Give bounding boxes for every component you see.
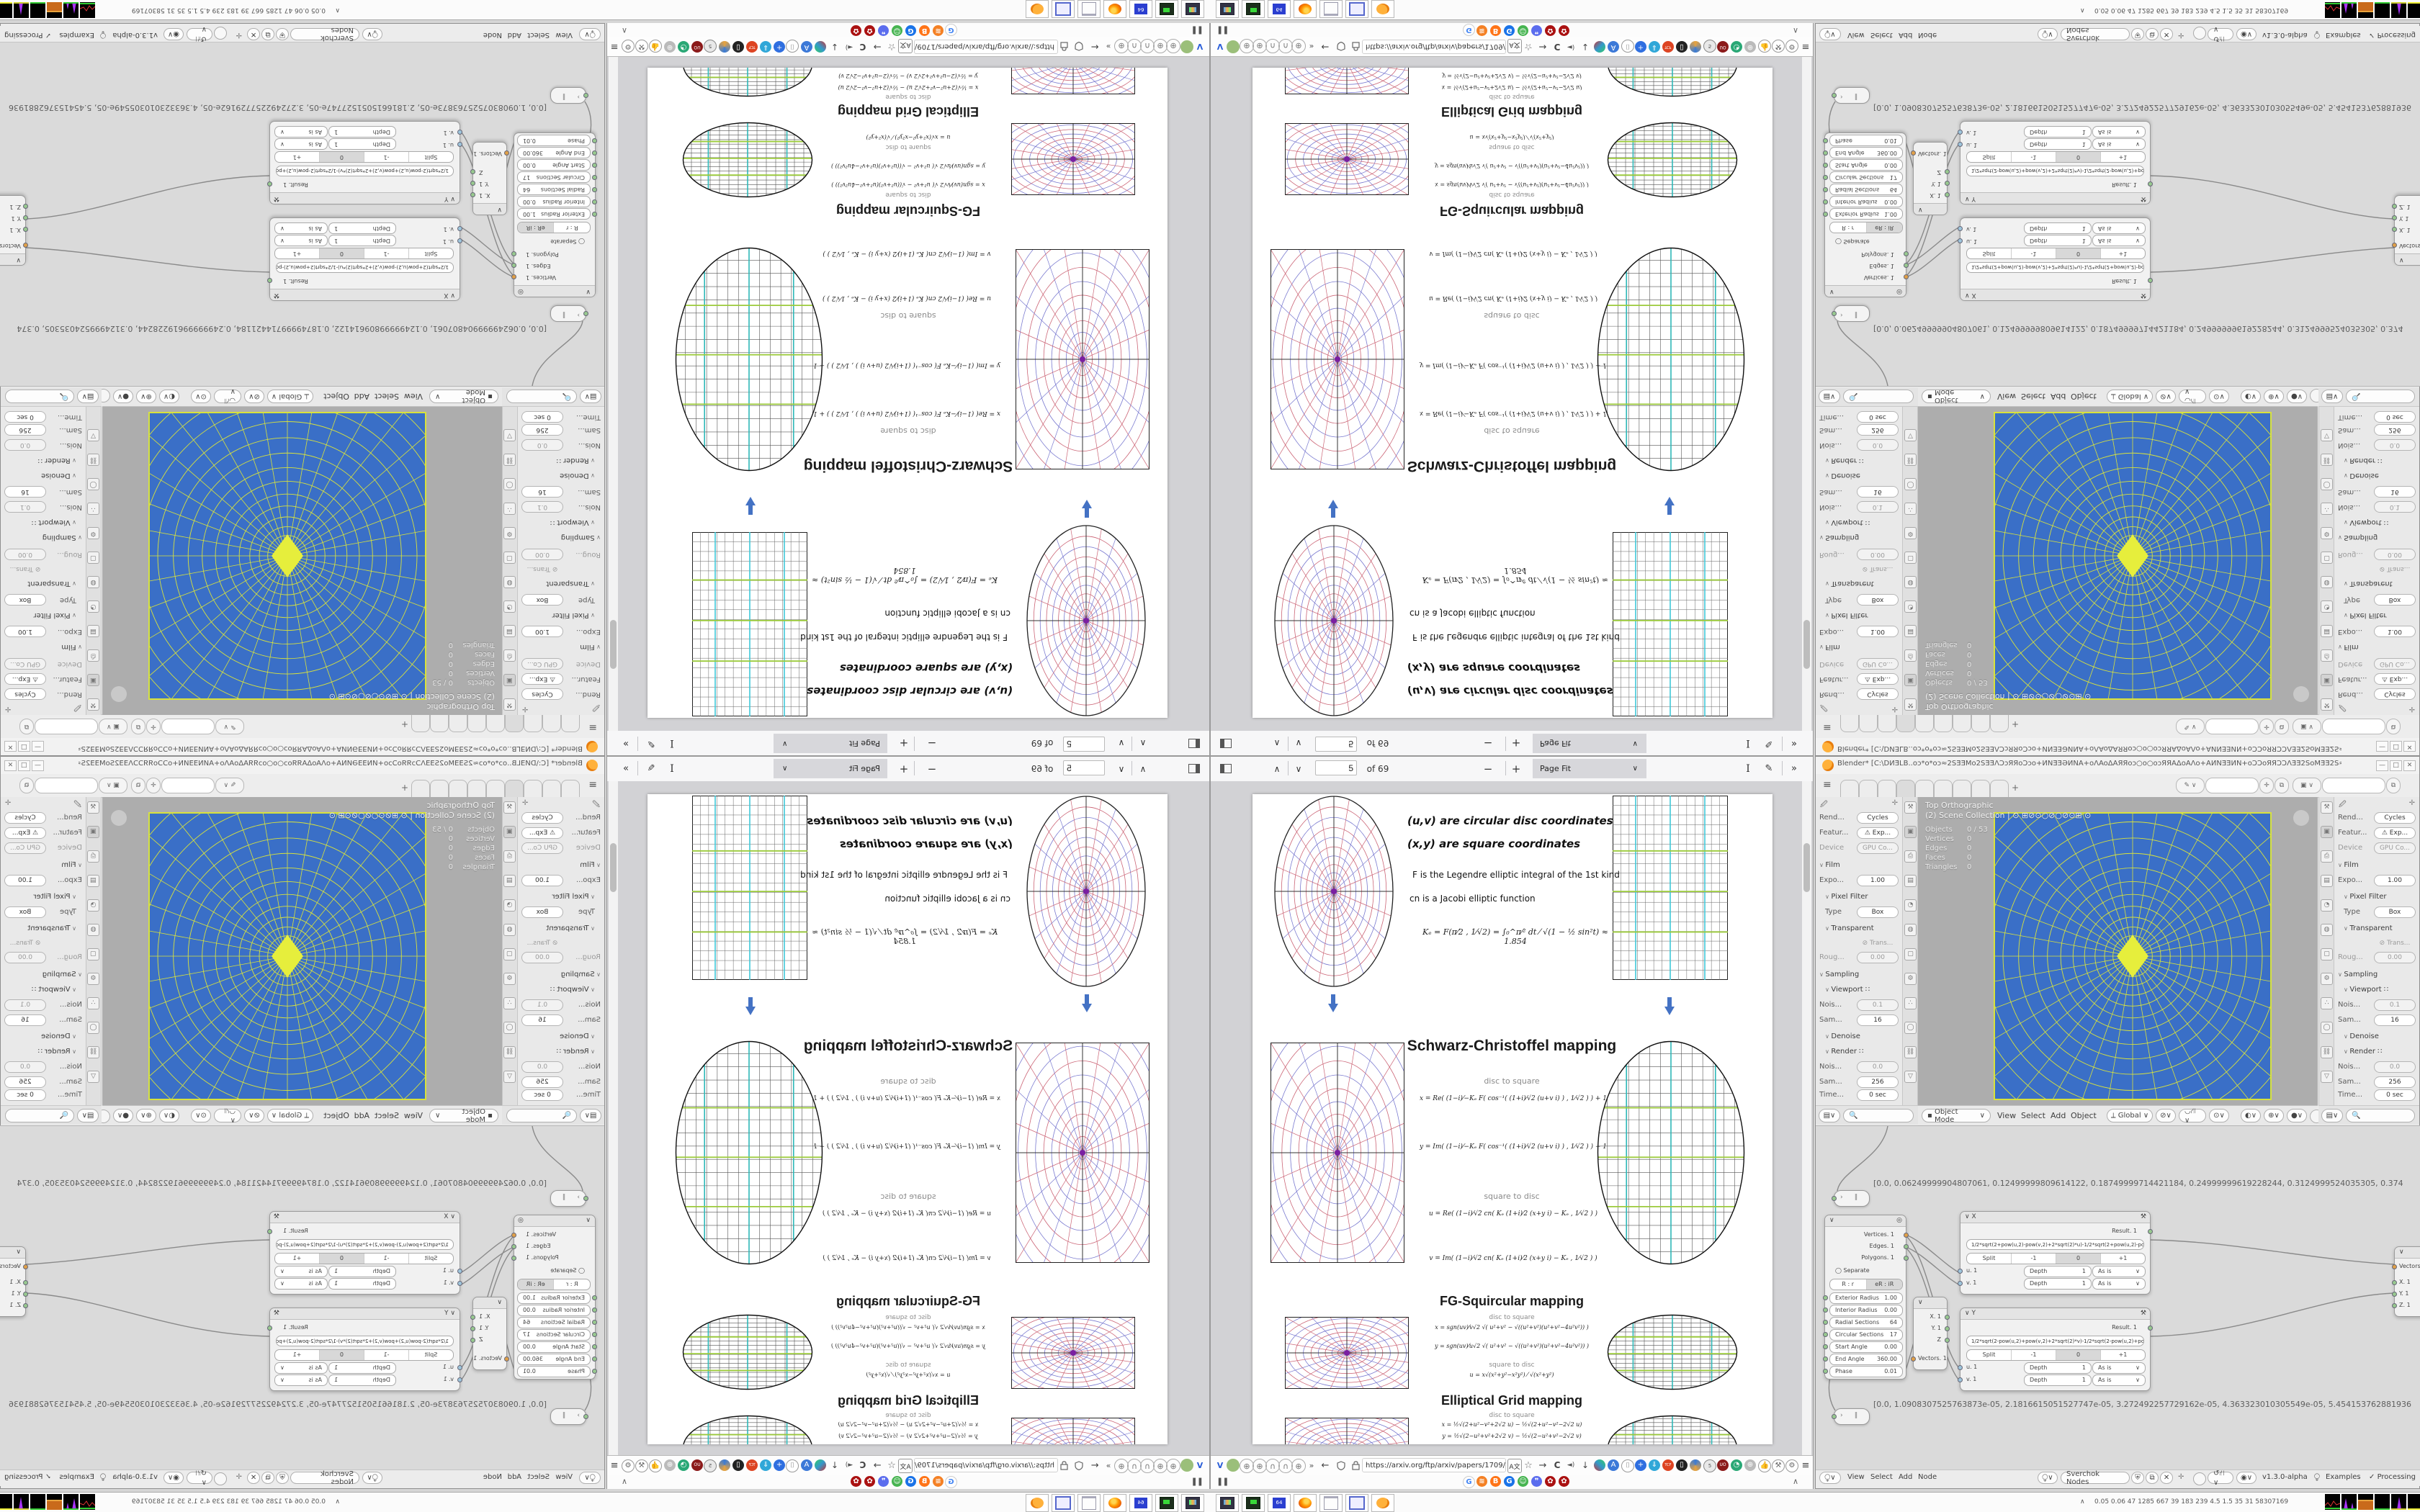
tool-tab-icon[interactable]: ⚒: [87, 698, 99, 711]
data-tab-icon[interactable]: ▽: [2321, 429, 2333, 441]
sidebar-toggle-icon[interactable]: [1186, 734, 1202, 752]
page-number-input[interactable]: [1315, 737, 1357, 752]
tool-tab-icon[interactable]: ⚒: [503, 801, 516, 814]
split-segment[interactable]: Split-10+1: [274, 1349, 454, 1361]
unlink-icon[interactable]: ✕: [247, 28, 260, 40]
render-time-field[interactable]: 0 sec: [521, 411, 563, 423]
gpu-graph-tray-icon[interactable]: [63, 1494, 79, 1510]
headset-icon[interactable]: ∩: [1265, 1459, 1280, 1473]
node-slider[interactable]: Start Angle0.00: [517, 1341, 591, 1353]
zoom-in-button[interactable]: +: [897, 760, 911, 778]
radius-mode-segment[interactable]: R : reR : iR: [1829, 1279, 1903, 1290]
split-segment[interactable]: Split-10+1: [274, 1253, 454, 1264]
add-menu[interactable]: Add: [2051, 392, 2066, 401]
collapse-chevron-icon[interactable]: ∧: [622, 1477, 627, 1486]
orientation-select[interactable]: ⟂ Global ∨: [267, 390, 313, 403]
gpu-graph-tray-icon[interactable]: [2341, 2, 2357, 18]
editor-type-button[interactable]: ▤∨: [2321, 1109, 2343, 1122]
select-menu[interactable]: Select: [1870, 1473, 1893, 1481]
blender-titlebar[interactable]: Blender* [C:\DИƎLB..oɔ*o*oɔ≈2SƎƎMo2SƎƎΛƆ…: [1, 737, 604, 755]
fake-user-shield-icon[interactable]: ⛨: [276, 1472, 289, 1484]
topbar-menu-icon[interactable]: ≡: [588, 779, 597, 791]
reload-icon[interactable]: C: [1551, 1459, 1564, 1472]
hamburger-menu-icon[interactable]: ≡: [608, 1459, 621, 1472]
denoise-section[interactable]: Denoise: [1825, 472, 1860, 480]
pixel-filter-section[interactable]: Pixel Filter: [552, 893, 595, 901]
workspace-tab[interactable]: [486, 780, 505, 798]
render-samples-field[interactable]: 256: [521, 424, 563, 436]
gear-extension-icon[interactable]: ⚙: [1785, 40, 1798, 53]
overflow-chevrons-icon[interactable]: »: [1102, 1459, 1115, 1472]
scene-selector-icon[interactable]: ✎ ∨: [215, 719, 244, 734]
node-slider[interactable]: Phase0.01: [517, 135, 591, 146]
pin-icon[interactable]: ✛: [2178, 31, 2184, 39]
pin-icon[interactable]: ✛: [2259, 778, 2274, 793]
pdf-content-area[interactable]: (u,v) are circular disc coordinates (x,y…: [607, 781, 1209, 1455]
sampling-section[interactable]: Sampling: [561, 971, 601, 978]
scrollbar-thumb[interactable]: [610, 620, 617, 669]
node-slider[interactable]: Exterior Radius1.00: [1829, 208, 1903, 220]
window-app-icon[interactable]: [1052, 1494, 1075, 1512]
bookmark-favicon[interactable]: G: [945, 24, 957, 36]
trash-extension-icon[interactable]: ▯: [1676, 41, 1688, 53]
tray-collapse-chevron[interactable]: ∧: [335, 1498, 340, 1506]
page-up-button[interactable]: ∧: [1270, 760, 1284, 778]
render-tab-icon[interactable]: ▣: [87, 826, 99, 838]
bookmark-favicon[interactable]: ✿: [851, 25, 861, 36]
tree-type-button[interactable]: ⧬∨: [2038, 1472, 2058, 1484]
node-editor[interactable]: [0.0, 0.06249999904807061, 0.12499999809…: [0, 1125, 604, 1470]
viewport-3d[interactable]: Top Orthographic (2) Scene Collection | …: [1918, 797, 2318, 1105]
zoom-out-button[interactable]: −: [1481, 760, 1495, 778]
workspace-tab[interactable]: [1934, 714, 1953, 732]
object-menu[interactable]: Object: [323, 1111, 349, 1120]
transparent-section[interactable]: Transparent: [1825, 580, 1874, 588]
fake-user-shield-icon[interactable]: ⛨: [276, 28, 289, 40]
object-tab-icon[interactable]: ▢: [87, 948, 99, 960]
speaker-icon[interactable]: ◄): [1564, 40, 1577, 53]
viewlayer-name-field[interactable]: [2322, 778, 2385, 793]
workspace-tab-active[interactable]: [1896, 780, 1915, 798]
properties-search-input[interactable]: 🔍: [1843, 1109, 1914, 1122]
sidebar-toggle-icon[interactable]: [1218, 734, 1234, 752]
workspace-tab[interactable]: [430, 714, 449, 732]
viewlayer-selector-icon[interactable]: ▣ ∨: [2293, 719, 2321, 734]
viewport-samples-field[interactable]: 16: [521, 1014, 563, 1026]
emulator-app-icon[interactable]: [1155, 1494, 1178, 1512]
bookmark-favicon[interactable]: ≋: [1476, 1476, 1487, 1487]
archive-extension-icon[interactable]: 5: [704, 1459, 717, 1472]
circle-generator-node[interactable]: ∨◎ Vertices. 1 Edges. 1 Polygons. 1 ◯ Se…: [514, 1215, 596, 1380]
zoom-select[interactable]: Page Fit ∨: [1533, 759, 1646, 778]
bookmark-favicon[interactable]: B: [1490, 25, 1501, 36]
editor-type-button[interactable]: ⧬∨: [579, 28, 601, 40]
editor-type-button[interactable]: ▤∨: [1819, 1109, 1840, 1122]
output-tab-icon[interactable]: ⎙: [1904, 850, 1917, 863]
firefox-app-icon[interactable]: [1103, 0, 1126, 18]
denoise-section[interactable]: Denoise: [560, 472, 595, 480]
filter-type-select[interactable]: Box: [1857, 906, 1899, 918]
workspace-tab[interactable]: [1990, 714, 2009, 732]
node-slider[interactable]: Circular Sections17: [517, 171, 591, 183]
view-menu[interactable]: View: [1847, 31, 1865, 39]
render-engine-select[interactable]: Cycles: [4, 812, 46, 824]
globe-icon[interactable]: ⊕: [1166, 39, 1180, 53]
globe-icon[interactable]: ⊕: [1240, 1459, 1254, 1473]
io-graph-tray-icon[interactable]: [0, 1494, 12, 1510]
cpu-graph-tray-icon[interactable]: [2325, 1494, 2340, 1510]
workspace-tab[interactable]: [411, 714, 430, 732]
roughness-field[interactable]: 0.00: [521, 549, 563, 560]
bookmark-favicon[interactable]: G: [1463, 24, 1475, 36]
pen-extension-icon[interactable]: [815, 41, 826, 53]
minimize-button[interactable]: —: [2376, 741, 2388, 752]
node-slider[interactable]: Exterior Radius1.00: [1829, 1292, 1903, 1304]
feature-set-select[interactable]: ⚠ Exp...: [2374, 827, 2416, 839]
node-slider[interactable]: Phase0.01: [517, 1366, 591, 1377]
transparent-section[interactable]: Transparent: [546, 924, 595, 932]
world-tab-icon[interactable]: ◍: [1904, 924, 1917, 936]
workspace-tab[interactable]: [1878, 714, 1896, 732]
data-tab-icon[interactable]: ▽: [1904, 1071, 1917, 1083]
copy-icon[interactable]: ⧉: [2275, 719, 2289, 734]
vector-out-node[interactable]: ∨ Vectors. 1 X. 1 Y. 1 Z. 1: [2394, 1246, 2420, 1317]
close-button[interactable]: ✕: [2403, 760, 2416, 771]
cpu-graph-tray-icon[interactable]: [80, 2, 95, 18]
forward-button[interactable]: →: [1536, 1459, 1549, 1472]
formula-node-x[interactable]: ∨ X⚒ Result. 1 1/2*sqrt(2+pow(u,2)-pow(v…: [1960, 1211, 2151, 1295]
bookmark-star-icon[interactable]: ☆: [885, 1459, 898, 1472]
sampling-section[interactable]: Sampling: [561, 534, 601, 541]
gear-extension-icon[interactable]: ⚙: [622, 40, 635, 53]
scene-tab-icon[interactable]: ◔: [2321, 600, 2333, 613]
overlay-toggle-icon[interactable]: ◐∨: [2241, 1109, 2261, 1122]
node-menu[interactable]: Node: [483, 31, 502, 39]
pin-icon[interactable]: ✛: [522, 799, 528, 807]
render-section[interactable]: Render ∷: [556, 1048, 595, 1056]
physics-tab-icon[interactable]: ◯: [1904, 1022, 1917, 1034]
headset-icon[interactable]: ∩: [1127, 39, 1142, 53]
workspace-tab[interactable]: [1971, 780, 1990, 798]
data-tab-icon[interactable]: ▽: [503, 429, 516, 441]
node-slider[interactable]: Start Angle0.00: [517, 159, 591, 171]
copy-icon[interactable]: ⧉: [131, 719, 145, 734]
thumbs-up-extension-icon[interactable]: 👍: [649, 40, 662, 53]
ublock-extension-icon[interactable]: UO: [1717, 41, 1729, 53]
workspace-tab[interactable]: [1859, 714, 1878, 732]
globe-icon[interactable]: ⊕: [1291, 39, 1306, 53]
tool-tab-icon[interactable]: ⚒: [1904, 801, 1917, 814]
copy-icon[interactable]: ⧉: [261, 28, 274, 40]
viewport-noise-field[interactable]: 0.1: [1857, 999, 1899, 1011]
formula-node-y[interactable]: ∨ Y⚒ Result. 1 1/2*sqrt(2-pow(u,2)+pow(v…: [1960, 1308, 2151, 1391]
speaker-icon[interactable]: ◄): [1564, 1459, 1577, 1472]
page-number-input[interactable]: [1063, 760, 1105, 775]
cpu-graph-tray-icon[interactable]: [80, 1494, 95, 1510]
split-segment[interactable]: Split-10+1: [1966, 1253, 2146, 1264]
ublock-extension-icon[interactable]: UO: [691, 41, 703, 53]
circle-generator-node[interactable]: ∨◎ Vertices. 1 Edges. 1 Polygons. 1 ◯ Se…: [514, 132, 596, 297]
formula-input[interactable]: 1/2*sqrt(2-pow(u,2)+pow(v,2)+2*sqrt(2)*v…: [276, 166, 454, 176]
pixel-filter-section[interactable]: Pixel Filter: [1825, 893, 1868, 901]
radius-mode-segment[interactable]: R : reR : iR: [1829, 222, 1903, 233]
scrollbar-thumb[interactable]: [610, 843, 617, 892]
scrollbar-thumb[interactable]: [1803, 620, 1810, 669]
pdf-scrollbar[interactable]: [1802, 781, 1811, 1455]
add-menu[interactable]: Add: [508, 1473, 521, 1481]
green-extension-icon[interactable]: [1227, 1459, 1240, 1472]
tcf-extension-icon[interactable]: TCF: [746, 41, 758, 53]
add-menu[interactable]: Add: [2051, 1111, 2066, 1120]
blender-titlebar[interactable]: Blender* [C:\DИƎLB..oɔ*o*oɔ≈2SƎƎMo2SƎƎΛƆ…: [1, 757, 604, 775]
physics-tab-icon[interactable]: ◯: [2321, 1022, 2333, 1034]
feature-set-select[interactable]: ⚠ Exp...: [1857, 827, 1899, 839]
gear-extension-icon[interactable]: ⚙: [1785, 1459, 1798, 1472]
headset-icon[interactable]: ∩: [1140, 39, 1155, 53]
workspace-tab[interactable]: [1859, 780, 1878, 798]
formula-node-y[interactable]: ∨ Y⚒ Result. 1 1/2*sqrt(2-pow(u,2)+pow(v…: [269, 121, 460, 204]
screenshot-app-icon[interactable]: [1181, 1494, 1204, 1512]
viewlayer-tab-icon[interactable]: ▤: [1904, 875, 1917, 887]
viewlayer-tab-icon[interactable]: ▤: [503, 625, 516, 637]
workspace-tab[interactable]: [449, 780, 467, 798]
page-down-button[interactable]: ∨: [1114, 760, 1129, 778]
url-bar[interactable]: https://arxiv.org/ftp/arxiv/papers/1709/…: [1362, 1458, 1506, 1472]
collapse-chevron-icon[interactable]: ∧: [1793, 1477, 1798, 1486]
split-segment[interactable]: Split-10+1: [274, 151, 454, 163]
thumbs-up-extension-icon[interactable]: 👍: [649, 1459, 662, 1472]
snap-toggle-icon[interactable]: ⊘∨: [244, 390, 264, 403]
headset-icon[interactable]: ∩: [1127, 1459, 1142, 1473]
net-graph-tray-icon[interactable]: [2391, 1494, 2406, 1510]
snap-toggle-icon[interactable]: ⊘∨: [2156, 1109, 2176, 1122]
collapsed-node[interactable]: ›∥: [1834, 1190, 1870, 1207]
output-tab-icon[interactable]: ⎙: [87, 649, 99, 662]
download-icon[interactable]: ↓: [1579, 40, 1592, 53]
world-tab-icon[interactable]: ◍: [503, 576, 516, 588]
scene-selector-icon[interactable]: ✎ ∨: [215, 778, 244, 793]
pause-glyph[interactable]: ❚❚: [1192, 26, 1204, 35]
pin-icon[interactable]: ✛: [2259, 719, 2274, 734]
maximize-button[interactable]: □: [18, 760, 30, 771]
properties-search-input[interactable]: 🔍: [5, 390, 74, 403]
render-noise-field[interactable]: 0.0: [521, 439, 563, 451]
render-noise-field[interactable]: 0.0: [521, 1061, 563, 1073]
select-menu[interactable]: Select: [2021, 1111, 2045, 1120]
zoom-out-button[interactable]: −: [1481, 734, 1495, 752]
navigation-gizmo[interactable]: [111, 810, 127, 826]
vector-in-node[interactable]: ∨ X. 1 Y. 1 Z Vectors. 1: [1913, 142, 1948, 215]
snap-toggle-icon[interactable]: ⊘∨: [2156, 390, 2176, 403]
forward-button[interactable]: →: [871, 1459, 884, 1472]
orientation-select[interactable]: ⟂ Global ∨: [2107, 390, 2153, 403]
scene-tab-icon[interactable]: ◔: [503, 899, 516, 912]
parent-tree-icon[interactable]: [214, 1472, 227, 1485]
pin-icon[interactable]: ✛: [146, 778, 161, 793]
ram-graph-tray-icon[interactable]: [47, 2, 62, 18]
node-slider[interactable]: Interior Radius0.00: [1829, 1305, 1903, 1316]
processing-checkbox[interactable]: ✓ Processing: [2369, 1473, 2416, 1481]
object-tab-icon[interactable]: ▢: [1904, 552, 1917, 564]
node-menu[interactable]: Node: [1918, 1473, 1937, 1481]
node-slider[interactable]: Radial Sections64: [1829, 1317, 1903, 1328]
copy-icon[interactable]: ⧉: [2146, 28, 2159, 40]
separate-checkbox[interactable]: ◯ Separate: [550, 1267, 585, 1274]
add-workspace-button[interactable]: +: [401, 719, 408, 729]
scene-selector-icon[interactable]: ✎ ∨: [2176, 719, 2205, 734]
cpu-graph-tray-icon[interactable]: [2325, 2, 2340, 18]
processing-checkbox[interactable]: ✓ Processing: [4, 1473, 51, 1481]
modifier-tab-icon[interactable]: ⚙: [503, 973, 516, 985]
notepad-app-icon[interactable]: [1319, 0, 1343, 18]
globe-icon[interactable]: ⊕: [1291, 1459, 1306, 1473]
zoom-in-button[interactable]: +: [897, 734, 911, 752]
bookmark-favicon[interactable]: B: [1490, 1476, 1501, 1487]
render-samples-field[interactable]: 256: [1857, 1076, 1899, 1088]
exposure-field[interactable]: 1.00: [521, 875, 563, 886]
page-up-button[interactable]: ∧: [1136, 734, 1150, 752]
viewlayer-tab-icon[interactable]: ▤: [2321, 875, 2333, 887]
sidebar-toggle-icon[interactable]: [1186, 760, 1202, 778]
collapsed-node[interactable]: ›∥: [550, 1190, 586, 1207]
render-engine-select[interactable]: Cycles: [1857, 812, 1899, 824]
transparent-section[interactable]: Transparent: [546, 580, 595, 588]
magnet-snap-icon[interactable]: ◡⛙∨: [214, 390, 241, 403]
modifier-tab-icon[interactable]: ⚙: [1904, 527, 1917, 539]
device-select[interactable]: GPU Co...: [521, 842, 563, 854]
minimize-button[interactable]: —: [2376, 760, 2388, 771]
formula-node-y[interactable]: ∨ Y⚒ Result. 1 1/2*sqrt(2-pow(u,2)+pow(v…: [269, 1308, 460, 1391]
separate-checkbox[interactable]: ◯ Separate: [1835, 238, 1870, 245]
select-menu[interactable]: Select: [527, 1473, 550, 1481]
bookmark-favicon[interactable]: G: [1504, 1476, 1515, 1487]
back-button[interactable]: ←: [1319, 1459, 1332, 1472]
object-tab-icon[interactable]: ▢: [87, 552, 99, 564]
editor-type-button[interactable]: ⧬∨: [1819, 28, 1841, 40]
device-select[interactable]: GPU Co...: [4, 658, 46, 670]
shading-mode-icon[interactable]: ●∨: [113, 390, 133, 403]
formula-node-x[interactable]: ∨ X⚒ Result. 1 1/2*sqrt(2+pow(u,2)-pow(v…: [269, 217, 460, 301]
viewport-section[interactable]: Viewport ∷: [550, 986, 595, 994]
unlink-icon[interactable]: ✕: [247, 1472, 260, 1484]
viewlayer-name-field[interactable]: [35, 778, 98, 793]
translate-extension-icon[interactable]: A: [801, 1459, 812, 1471]
proportional-edit-icon[interactable]: ⊙∨: [2209, 1109, 2229, 1122]
bookmark-favicon[interactable]: ☺: [1518, 25, 1528, 36]
viewlayer-selector-icon[interactable]: ▣ ∨: [2293, 778, 2321, 793]
viewport-3d[interactable]: Top Orthographic (2) Scene Collection | …: [102, 797, 502, 1105]
viewlayer-name-field[interactable]: [35, 719, 98, 734]
workspace-tab[interactable]: [1915, 714, 1934, 732]
workspace-tab[interactable]: [1840, 780, 1859, 798]
vector-in-node[interactable]: ∨ X. 1 Y. 1 Z Vectors. 1: [472, 142, 507, 215]
node-editor[interactable]: [0.0, 0.06249999904807061, 0.12499999809…: [1816, 1125, 2420, 1470]
editor-type-button[interactable]: ▤∨: [1819, 390, 1840, 403]
bookmark-favicon[interactable]: ✿: [864, 25, 875, 36]
collapsed-node[interactable]: ›∥: [1834, 1408, 1870, 1425]
blender-app-icon[interactable]: [1371, 1494, 1394, 1512]
blender-titlebar[interactable]: Blender* [C:\DИƎLB..oɔ*o*oɔ≈2SƎƎMo2SƎƎΛƆ…: [1816, 757, 2419, 775]
savestate-app-icon[interactable]: 64: [1129, 0, 1152, 18]
pin-icon[interactable]: ✛: [2178, 1473, 2184, 1481]
globe2-extension-icon[interactable]: ⊕: [1744, 41, 1756, 53]
snap-toggle-icon[interactable]: ⊘∨: [244, 1109, 264, 1122]
constraints-tab-icon[interactable]: ⛓: [503, 1046, 516, 1058]
node-slider[interactable]: Interior Radius0.00: [517, 196, 591, 207]
pdf-scrollbar[interactable]: [609, 781, 618, 1455]
forward-button[interactable]: →: [871, 40, 884, 53]
ram-graph-tray-icon[interactable]: [47, 1494, 62, 1510]
constraints-tab-icon[interactable]: ⛓: [2321, 454, 2333, 466]
pdf-scrollbar[interactable]: [609, 57, 618, 731]
gpu-graph-tray-icon[interactable]: [2341, 1494, 2357, 1510]
object-menu[interactable]: Object: [323, 392, 349, 401]
split-segment[interactable]: Split-10+1: [1966, 1349, 2146, 1361]
pin-icon[interactable]: ✛: [5, 705, 11, 713]
formula-node-x[interactable]: ∨ X⚒ Result. 1 1/2*sqrt(2+pow(u,2)-pow(v…: [1960, 217, 2151, 301]
magnet-snap-icon[interactable]: ◡⛙∨: [2179, 1109, 2206, 1122]
pen-extension-icon[interactable]: [1594, 41, 1605, 53]
speaker-icon[interactable]: ◄): [843, 40, 856, 53]
archive-extension-icon[interactable]: 5: [704, 40, 717, 53]
ram-graph-tray-icon[interactable]: [2358, 1494, 2373, 1510]
data-tab-icon[interactable]: ▽: [2321, 1071, 2333, 1083]
proportional-edit-icon[interactable]: ⊙∨: [191, 390, 211, 403]
overlay-icon[interactable]: ◉∨: [163, 1472, 184, 1484]
feature-set-select[interactable]: ⚠ Exp...: [4, 673, 46, 685]
modifier-tab-icon[interactable]: ⚙: [87, 527, 99, 539]
constraints-tab-icon[interactable]: ⛓: [2321, 1046, 2333, 1058]
translate-icon[interactable]: A文: [1507, 1459, 1522, 1473]
film-section[interactable]: Film: [1819, 643, 1840, 651]
viewport-noise-field[interactable]: 0.1: [1857, 501, 1899, 513]
bookmark-favicon[interactable]: ❞: [1531, 25, 1542, 36]
bookmark-favicon[interactable]: B: [919, 25, 930, 36]
film-section[interactable]: Film: [580, 861, 601, 869]
physics-tab-icon[interactable]: ◯: [2321, 478, 2333, 490]
globe2-extension-icon[interactable]: ⊕: [664, 41, 676, 53]
render-tab-icon[interactable]: ▣: [2321, 826, 2333, 838]
shield-download-extension-icon[interactable]: ⇓: [1649, 41, 1660, 53]
xray-toggle-icon[interactable]: ⊕∨: [136, 390, 156, 403]
tracking-shield-icon[interactable]: [1335, 1459, 1348, 1472]
editor-type-button[interactable]: ⧬∨: [579, 1472, 601, 1484]
bookmark-favicon[interactable]: ≋: [933, 1476, 944, 1487]
copy-icon[interactable]: ⧉: [19, 719, 34, 734]
toolbar-more-button[interactable]: »: [619, 760, 633, 778]
overflow-chevrons-icon[interactable]: »: [1305, 40, 1318, 53]
node-slider[interactable]: Exterior Radius1.00: [517, 208, 591, 220]
feature-set-select[interactable]: ⚠ Exp...: [521, 673, 563, 685]
world-tab-icon[interactable]: ◍: [503, 924, 516, 936]
modifier-tab-icon[interactable]: ⚙: [503, 527, 516, 539]
radius-mode-segment[interactable]: R : reR : iR: [517, 222, 591, 233]
translate-extension-icon[interactable]: A: [1608, 1459, 1619, 1471]
pause-glyph[interactable]: ❚❚: [1192, 1477, 1204, 1486]
editor-type-button[interactable]: ▤∨: [580, 1109, 601, 1122]
tracking-shield-icon[interactable]: [1072, 1459, 1085, 1472]
output-tab-icon[interactable]: ⎙: [1904, 649, 1917, 662]
device-select[interactable]: GPU Co...: [4, 842, 46, 854]
snap-magnet-icon[interactable]: ↺⛙∨: [2208, 1472, 2233, 1484]
blender-titlebar[interactable]: Blender* [C:\DИƎLB..oɔ*o*oɔ≈2SƎƎMo2SƎƎΛƆ…: [1816, 737, 2419, 755]
copy-icon[interactable]: ⧉: [19, 778, 34, 793]
tool-tab-icon[interactable]: ⚒: [503, 698, 516, 711]
render-samples-field[interactable]: 256: [1857, 424, 1899, 436]
node-slider[interactable]: Start Angle0.00: [1829, 159, 1903, 171]
translate-icon[interactable]: A文: [898, 1459, 913, 1473]
device-select[interactable]: GPU Co...: [2374, 658, 2416, 670]
